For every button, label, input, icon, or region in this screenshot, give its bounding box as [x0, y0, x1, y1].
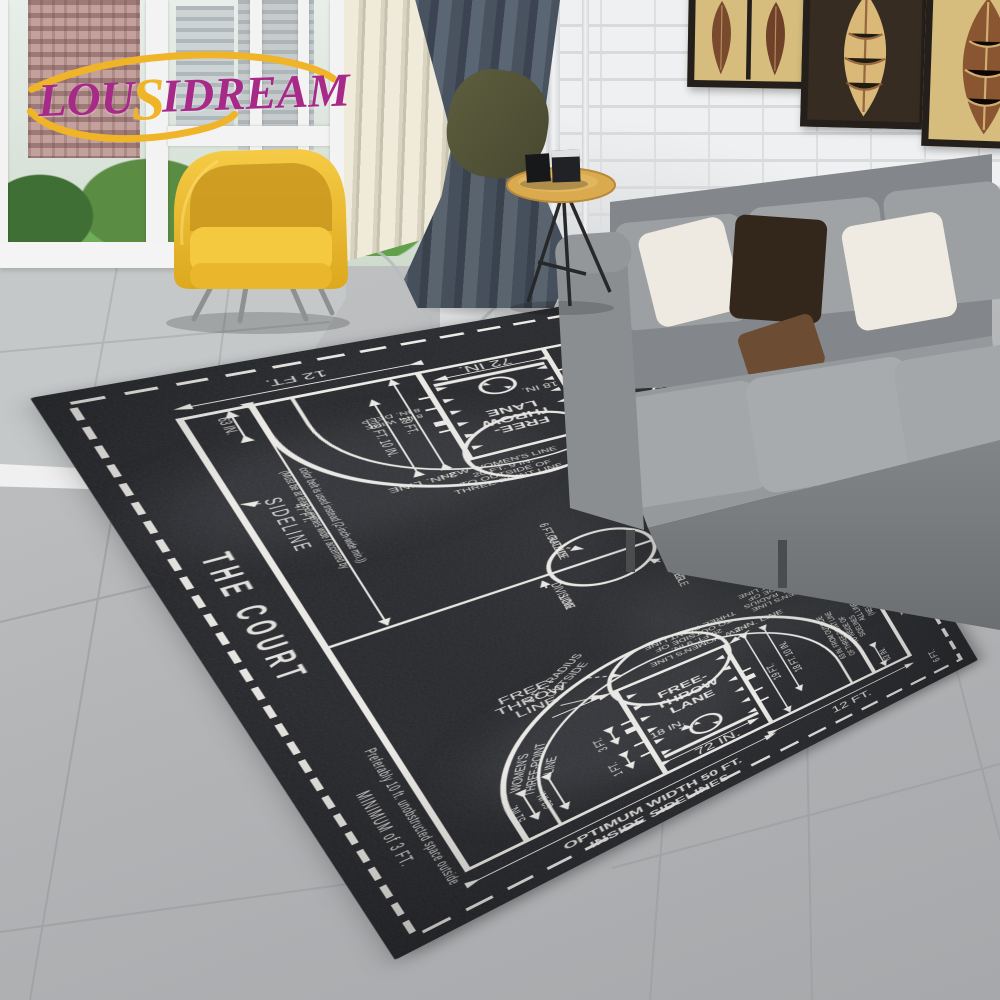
room-scene: FREE- THROW LINE FREE- THROW LANE 72 IN.…	[0, 0, 1000, 1000]
window-frame	[0, 0, 8, 250]
yellow-armchair	[160, 135, 360, 335]
art-frame-2	[800, 0, 930, 130]
brand-watermark: LOUSIDREAM	[24, 42, 345, 153]
logo-text-post: IDREAM	[161, 64, 351, 123]
logo-text: LOUSIDREAM	[37, 58, 351, 138]
pillow-dark-brown	[729, 214, 828, 324]
side-table	[498, 140, 628, 318]
sofa-leg	[778, 540, 787, 588]
sofa-leg-2	[626, 530, 635, 572]
pillow-white-2	[840, 210, 959, 332]
logo-text-pre: LOU	[37, 72, 135, 127]
art-frame-3	[921, 0, 1000, 150]
table-objects	[525, 150, 580, 183]
art-frame-1	[687, 0, 811, 89]
